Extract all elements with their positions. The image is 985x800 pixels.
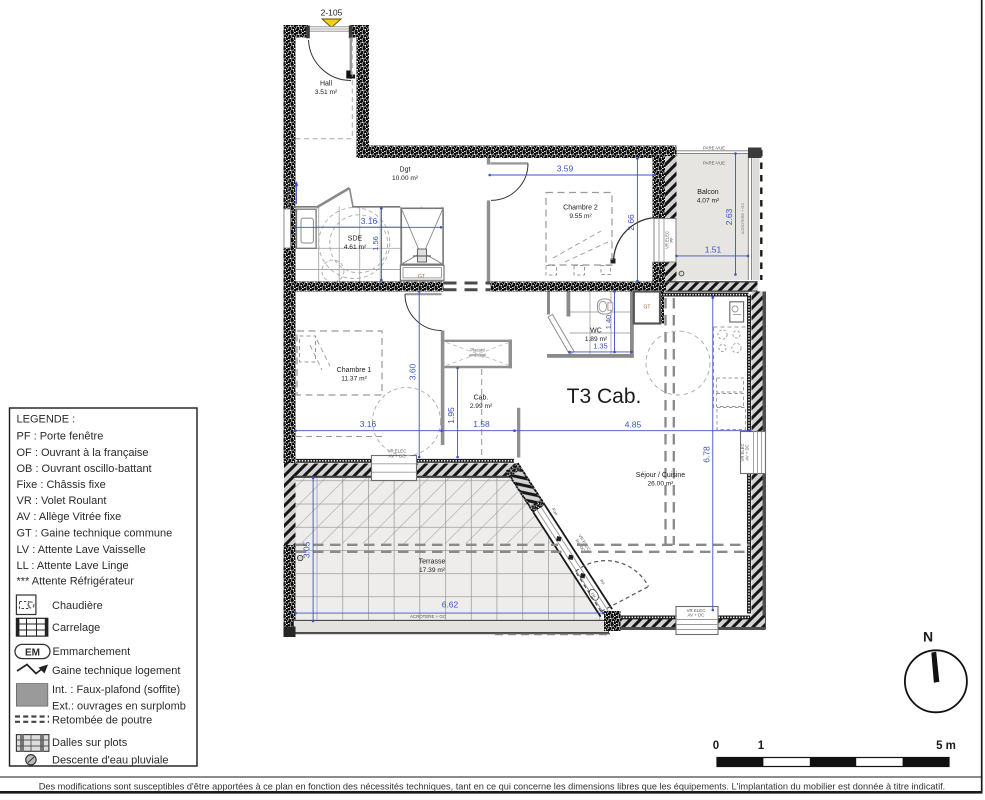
svg-text:Carrelage: Carrelage bbox=[52, 622, 100, 634]
svg-text:Cab.: Cab. bbox=[474, 395, 489, 402]
svg-text:Des modifications sont suscept: Des modifications sont susceptibles d'êt… bbox=[39, 781, 945, 791]
svg-text:*** Attente Réfrigérateur: *** Attente Réfrigérateur bbox=[17, 576, 135, 588]
svg-text:N: N bbox=[923, 629, 933, 645]
svg-text:OB : Ouvrant oscillo-battant: OB : Ouvrant oscillo-battant bbox=[17, 463, 152, 475]
svg-text:SDE: SDE bbox=[348, 236, 363, 243]
svg-text:PARE-VUE: PARE-VUE bbox=[703, 161, 725, 166]
svg-text:Balcon: Balcon bbox=[697, 189, 719, 196]
svg-text:3.51 m²: 3.51 m² bbox=[315, 89, 338, 96]
svg-text:3.60: 3.60 bbox=[408, 363, 418, 380]
svg-text:2.99 m²: 2.99 m² bbox=[470, 403, 493, 410]
svg-text:PF: PF bbox=[599, 579, 606, 587]
svg-text:PF: PF bbox=[669, 237, 674, 243]
svg-text:GT : Gaine technique commune: GT : Gaine technique commune bbox=[17, 528, 173, 540]
svg-text:1.58: 1.58 bbox=[473, 419, 490, 429]
svg-text:2-105: 2-105 bbox=[321, 8, 343, 18]
svg-text:3.59: 3.59 bbox=[557, 164, 574, 174]
svg-text:PF : Porte fenêtre: PF : Porte fenêtre bbox=[17, 431, 104, 443]
svg-text:Hall: Hall bbox=[320, 81, 333, 88]
svg-text:Dalles sur plots: Dalles sur plots bbox=[52, 737, 128, 749]
svg-text:3.05: 3.05 bbox=[302, 541, 312, 558]
svg-text:1.40: 1.40 bbox=[604, 315, 613, 330]
svg-text:OF : Ouvrant à la française: OF : Ouvrant à la française bbox=[17, 447, 149, 459]
svg-text:VR : Volet Roulant: VR : Volet Roulant bbox=[17, 495, 107, 507]
svg-text:GT: GT bbox=[644, 305, 651, 311]
svg-text:AV + DC: AV + DC bbox=[745, 444, 750, 460]
svg-text:17.39 m²: 17.39 m² bbox=[419, 567, 446, 574]
svg-text:Chambre 1: Chambre 1 bbox=[337, 367, 372, 374]
svg-text:4.85: 4.85 bbox=[625, 420, 642, 430]
svg-text:Fixe : Châssis fixe: Fixe : Châssis fixe bbox=[17, 479, 106, 491]
svg-text:1.35: 1.35 bbox=[593, 341, 608, 350]
svg-text:11.37 m²: 11.37 m² bbox=[341, 376, 367, 383]
svg-text:1.95: 1.95 bbox=[446, 407, 456, 424]
svg-text:LV : Attente Lave Vaisselle: LV : Attente Lave Vaisselle bbox=[17, 544, 146, 556]
svg-text:Retombée de poutre: Retombée de poutre bbox=[52, 715, 152, 727]
svg-text:Ext.: ouvrages en surplomb: Ext.: ouvrages en surplomb bbox=[52, 701, 186, 713]
svg-text:3.16: 3.16 bbox=[361, 216, 378, 226]
svg-text:Chaudière: Chaudière bbox=[52, 600, 103, 612]
svg-text:1.51: 1.51 bbox=[705, 244, 722, 254]
svg-text:Terrasse: Terrasse bbox=[419, 559, 446, 566]
svg-text:ACROTERE + GC: ACROTERE + GC bbox=[410, 614, 446, 619]
svg-text:0: 0 bbox=[713, 740, 719, 752]
svg-text:2.63: 2.63 bbox=[724, 208, 734, 225]
svg-text:LL : Attente Lave Linge: LL : Attente Lave Linge bbox=[17, 560, 129, 572]
svg-text:T3 Cab.: T3 Cab. bbox=[567, 385, 642, 408]
svg-text:4.07 m²: 4.07 m² bbox=[697, 198, 720, 205]
svg-text:1.56: 1.56 bbox=[371, 236, 380, 251]
svg-text:AV + DC: AV + DC bbox=[688, 613, 705, 618]
svg-text:1: 1 bbox=[758, 740, 765, 752]
svg-text:LEGENDE :: LEGENDE : bbox=[17, 414, 76, 426]
svg-text:Chambre 2: Chambre 2 bbox=[563, 205, 598, 212]
svg-text:ACROTERE + GC: ACROTERE + GC bbox=[287, 177, 291, 208]
svg-text:26.00 m²: 26.00 m² bbox=[647, 481, 674, 488]
svg-text:10.00 m²: 10.00 m² bbox=[392, 175, 419, 182]
svg-text:WC: WC bbox=[590, 328, 602, 335]
svg-text:4.61 m²: 4.61 m² bbox=[344, 244, 367, 251]
svg-text:Emmarchement: Emmarchement bbox=[53, 646, 131, 658]
svg-text:Séjour / Cuisine: Séjour / Cuisine bbox=[636, 472, 686, 479]
svg-text:9.55 m²: 9.55 m² bbox=[569, 213, 592, 220]
svg-text:3.16: 3.16 bbox=[360, 419, 377, 429]
svg-text:aménagé: aménagé bbox=[469, 352, 487, 357]
svg-text:5 m: 5 m bbox=[936, 740, 956, 752]
svg-text:Dgt: Dgt bbox=[400, 167, 411, 174]
svg-text:2.66: 2.66 bbox=[626, 214, 636, 231]
svg-text:Int. : Faux-plafond (soffite): Int. : Faux-plafond (soffite) bbox=[52, 684, 180, 696]
svg-text:AV : Allège Vitrée fixe: AV : Allège Vitrée fixe bbox=[17, 511, 122, 523]
svg-text:Gaine technique logement: Gaine technique logement bbox=[52, 665, 180, 677]
svg-text:ACROTERE + GC: ACROTERE + GC bbox=[741, 203, 745, 234]
svg-text:PARE-VUE: PARE-VUE bbox=[703, 145, 725, 150]
svg-text:6.78: 6.78 bbox=[701, 446, 711, 463]
svg-text:EM: EM bbox=[25, 647, 40, 658]
svg-text:6.62: 6.62 bbox=[442, 600, 459, 610]
svg-text:Descente d'eau pluviale: Descente d'eau pluviale bbox=[52, 755, 168, 767]
svg-text:GT: GT bbox=[418, 274, 425, 280]
